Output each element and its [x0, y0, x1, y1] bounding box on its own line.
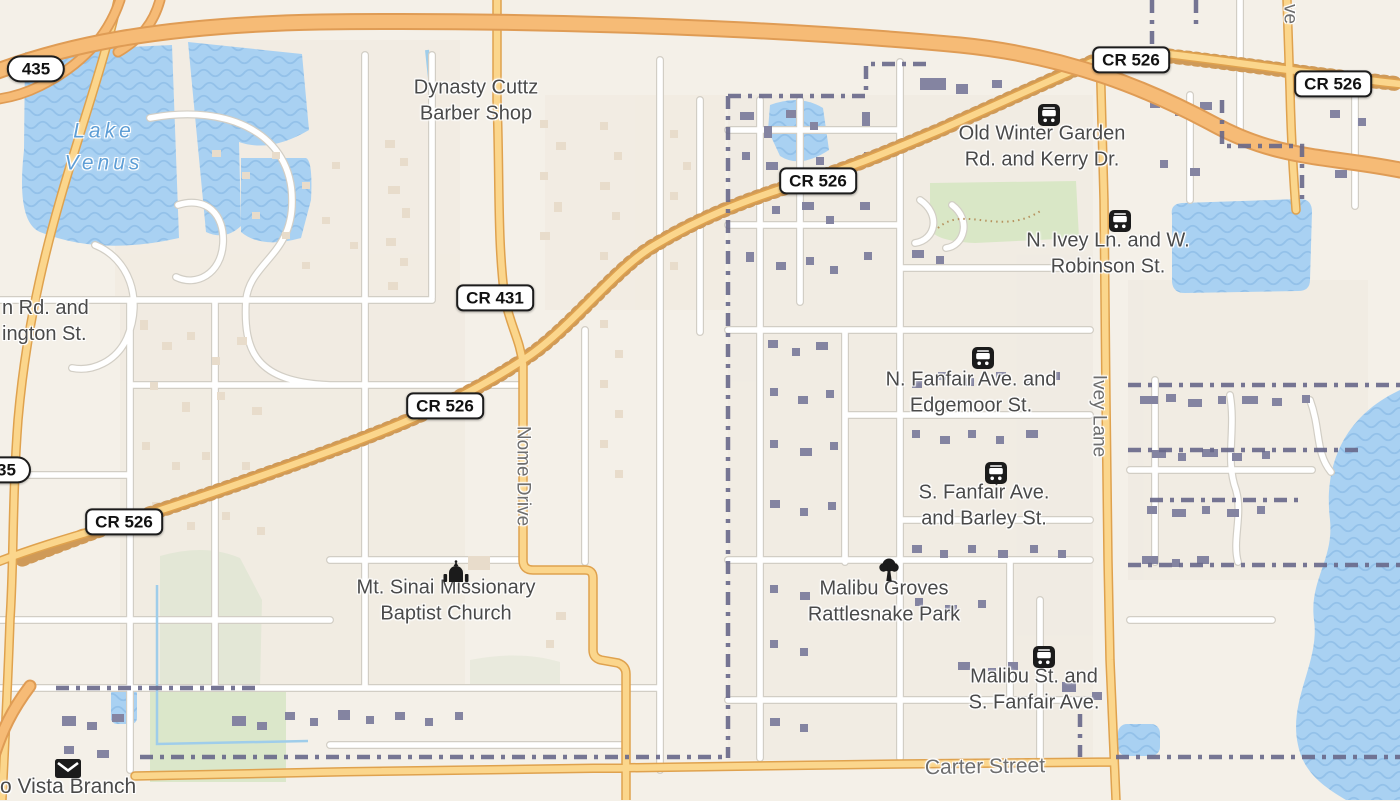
route-shield-435-partial: 35: [0, 456, 31, 483]
poi-label-malibu-fanfair: Malibu St. andS. Fanfair Ave.: [969, 664, 1100, 717]
lake-venus-label: Lake Venus: [65, 116, 144, 179]
poi-label-old-winter-garden: Old Winter GardenRd. and Kerry Dr.: [959, 121, 1126, 174]
street-label-ivey-lane: Ivey Lane: [1086, 375, 1111, 457]
street-label-carter-street: Carter Street: [925, 752, 1046, 782]
route-shield-cr526-topright: CR 526: [1294, 70, 1372, 97]
route-shield-cr526-center: CR 526: [779, 167, 857, 194]
poi-label-ivey-robinson: N. Ivey Ln. and W.Robinson St.: [1026, 228, 1189, 281]
poi-label-fanfair-barley: S. Fanfair Ave.and Barley St.: [919, 480, 1050, 533]
map-canvas[interactable]: Lake Venus Dynasty CuttzBarber Shop Old …: [0, 0, 1400, 800]
route-shield-435: 435: [7, 55, 65, 82]
street-label-nome-drive: Nome Drive: [510, 426, 535, 526]
route-shield-cr526-top: CR 526: [1092, 46, 1170, 73]
route-shield-cr431: CR 431: [456, 284, 534, 311]
poi-label-dynasty-cuttz: Dynasty CuttzBarber Shop: [414, 75, 538, 128]
route-shield-cr526-left: CR 526: [85, 508, 163, 535]
street-label-avenue-partial: ve: [1277, 4, 1302, 24]
map-screenshot: { "map": { "shields": { "s435": "435", "…: [0, 0, 1400, 800]
poi-label-truncated-road: n Rd. andington St.: [2, 295, 89, 348]
route-shield-cr526-mid: CR 526: [406, 392, 484, 419]
poi-label-fanfair-edgemoor: N. Fanfair Ave. andEdgemoor St.: [886, 367, 1057, 420]
map-base-layer: [0, 0, 1400, 800]
